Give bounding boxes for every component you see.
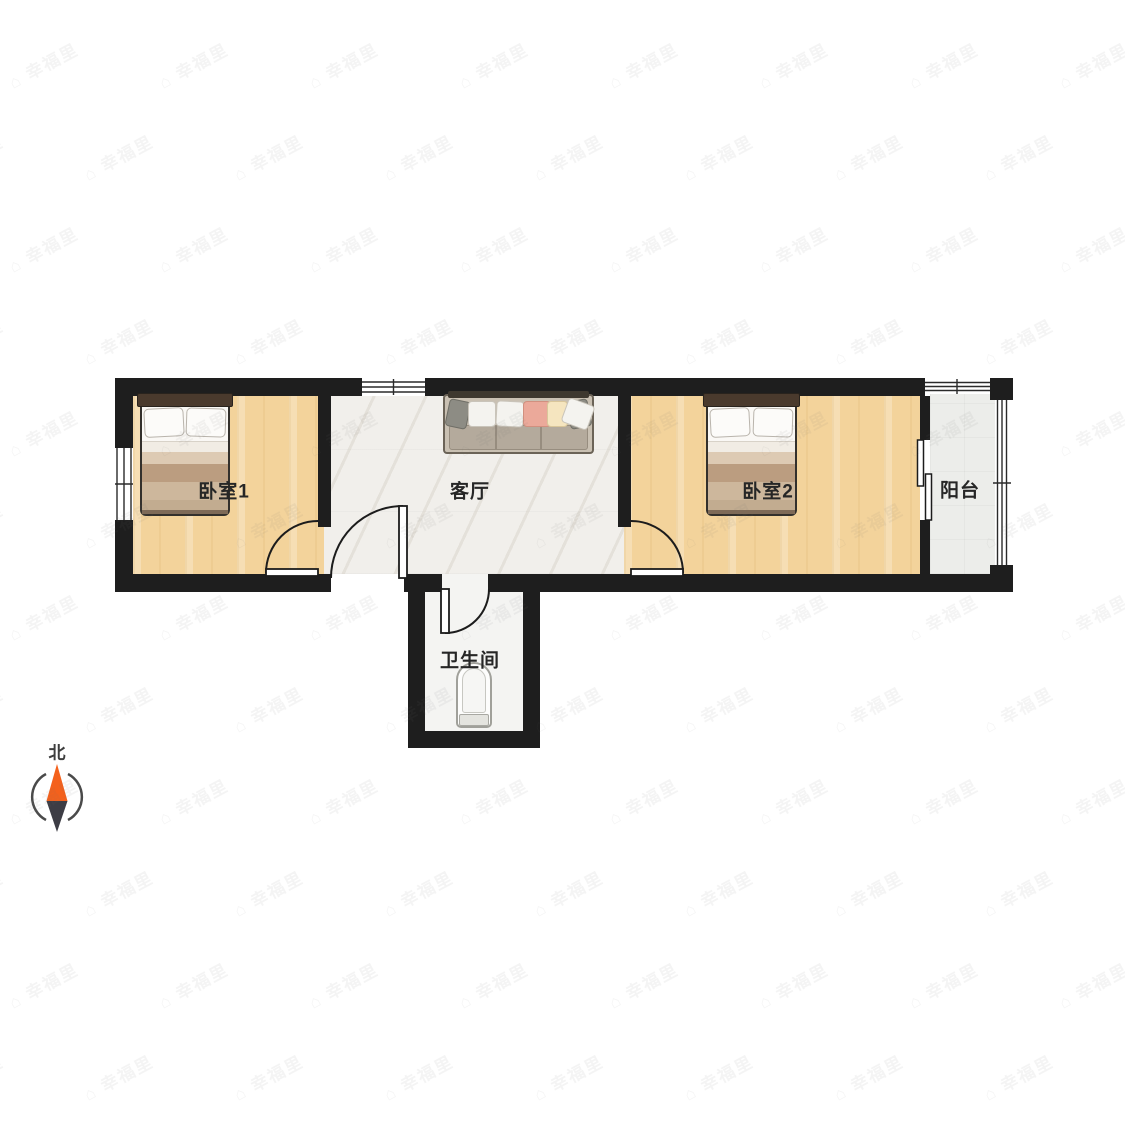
pillow-icon — [143, 407, 184, 438]
compass-north-needle — [47, 764, 68, 801]
watermark: ⌂ 幸福里 — [754, 772, 833, 830]
toilet-tank — [459, 714, 489, 726]
window-bedroom1-left — [115, 448, 133, 520]
wall-segment — [920, 520, 930, 574]
bed-headboard — [137, 393, 233, 407]
watermark: ⌂ 幸福里 — [304, 956, 383, 1014]
watermark: ⌂ 幸福里 — [829, 1048, 908, 1106]
watermark: ⌂ 幸福里 — [904, 588, 983, 646]
room-label-bedroom2: 卧室2 — [742, 477, 794, 504]
watermark: ⌂ 幸福里 — [1054, 220, 1125, 278]
bathroom-doorway-floor — [442, 574, 488, 592]
watermark: ⌂ 幸福里 — [0, 680, 7, 738]
toilet-seat — [462, 668, 486, 713]
watermark: ⌂ 幸福里 — [4, 404, 83, 462]
watermark: ⌂ 幸福里 — [904, 956, 983, 1014]
wall-segment — [488, 574, 1013, 592]
watermark: ⌂ 幸福里 — [1054, 404, 1125, 462]
watermark: ⌂ 幸福里 — [4, 36, 83, 94]
wall-segment — [115, 378, 133, 448]
compass-ring-left — [32, 774, 46, 820]
watermark: ⌂ 幸福里 — [229, 1048, 308, 1106]
watermark: ⌂ 幸福里 — [979, 864, 1058, 922]
watermark: ⌂ 幸福里 — [304, 36, 383, 94]
watermark: ⌂ 幸福里 — [529, 312, 608, 370]
window-living-top — [362, 379, 425, 395]
watermark: ⌂ 幸福里 — [454, 772, 533, 830]
watermark: ⌂ 幸福里 — [229, 312, 308, 370]
watermark: ⌂ 幸福里 — [0, 1048, 7, 1106]
watermark: ⌂ 幸福里 — [0, 496, 7, 554]
watermark: ⌂ 幸福里 — [79, 680, 158, 738]
watermark: ⌂ 幸福里 — [529, 0, 608, 1]
wall-segment — [408, 731, 540, 748]
window-balcony-right — [993, 400, 1011, 565]
compass-north-label: 北 — [49, 739, 66, 764]
watermark: ⌂ 幸福里 — [79, 128, 158, 186]
pillow-icon — [753, 407, 794, 437]
watermark: ⌂ 幸福里 — [829, 128, 908, 186]
wall-segment — [920, 396, 930, 440]
watermark: ⌂ 幸福里 — [304, 588, 383, 646]
watermark: ⌂ 幸福里 — [4, 956, 83, 1014]
watermark: ⌂ 幸福里 — [0, 0, 7, 1]
watermark: ⌂ 幸福里 — [379, 864, 458, 922]
watermark: ⌂ 幸福里 — [604, 772, 683, 830]
room-label-bedroom1: 卧室1 — [198, 477, 250, 504]
watermark: ⌂ 幸福里 — [829, 864, 908, 922]
wall-segment — [115, 574, 331, 592]
watermark: ⌂ 幸福里 — [79, 864, 158, 922]
watermark: ⌂ 幸福里 — [229, 0, 308, 1]
watermark: ⌂ 幸福里 — [754, 220, 833, 278]
watermark: ⌂ 幸福里 — [979, 312, 1058, 370]
watermark: ⌂ 幸福里 — [229, 864, 308, 922]
sofa-pillow — [468, 401, 496, 427]
watermark: ⌂ 幸福里 — [79, 1048, 158, 1106]
watermark: ⌂ 幸福里 — [379, 1048, 458, 1106]
wall-segment — [990, 378, 1013, 400]
watermark: ⌂ 幸福里 — [79, 312, 158, 370]
compass-ring-right — [68, 774, 82, 820]
wall-segment — [523, 592, 540, 748]
watermark: ⌂ 幸福里 — [154, 220, 233, 278]
watermark: ⌂ 幸福里 — [829, 312, 908, 370]
watermark: ⌂ 幸福里 — [0, 128, 7, 186]
floor-plan-canvas: ⌂ 幸福里⌂ 幸福里⌂ 幸福里⌂ 幸福里⌂ 幸福里⌂ 幸福里⌂ 幸福里⌂ 幸福里… — [0, 0, 1125, 1125]
watermark: ⌂ 幸福里 — [0, 312, 7, 370]
sofa-back — [448, 391, 589, 398]
room-label-living: 客厅 — [450, 477, 490, 504]
watermark: ⌂ 幸福里 — [754, 588, 833, 646]
watermark: ⌂ 幸福里 — [679, 0, 758, 1]
watermark: ⌂ 幸福里 — [4, 220, 83, 278]
room-label-balcony: 阳台 — [940, 476, 980, 503]
watermark: ⌂ 幸福里 — [529, 864, 608, 922]
watermark: ⌂ 幸福里 — [754, 36, 833, 94]
watermark: ⌂ 幸福里 — [379, 128, 458, 186]
watermark: ⌂ 幸福里 — [529, 1048, 608, 1106]
watermark: ⌂ 幸福里 — [529, 680, 608, 738]
bed-headboard — [703, 393, 800, 407]
watermark: ⌂ 幸福里 — [904, 36, 983, 94]
watermark: ⌂ 幸福里 — [454, 220, 533, 278]
watermark: ⌂ 幸福里 — [979, 1048, 1058, 1106]
watermark: ⌂ 幸福里 — [904, 220, 983, 278]
watermark: ⌂ 幸福里 — [679, 1048, 758, 1106]
watermark: ⌂ 幸福里 — [304, 772, 383, 830]
watermark: ⌂ 幸福里 — [154, 36, 233, 94]
wall-segment — [618, 396, 631, 527]
pillow-icon — [709, 407, 750, 438]
watermark: ⌂ 幸福里 — [529, 128, 608, 186]
compass-icon — [32, 764, 82, 832]
watermark: ⌂ 幸福里 — [0, 864, 7, 922]
watermark: ⌂ 幸福里 — [1054, 956, 1125, 1014]
watermark: ⌂ 幸福里 — [154, 588, 233, 646]
sofa-pillow — [495, 400, 524, 427]
watermark: ⌂ 幸福里 — [679, 128, 758, 186]
watermark: ⌂ 幸福里 — [679, 864, 758, 922]
watermark: ⌂ 幸福里 — [604, 956, 683, 1014]
watermark: ⌂ 幸福里 — [604, 36, 683, 94]
watermark: ⌂ 幸福里 — [154, 956, 233, 1014]
compass-south-needle — [47, 801, 68, 832]
watermark: ⌂ 幸福里 — [379, 0, 458, 1]
wall-segment — [990, 565, 1013, 592]
watermark: ⌂ 幸福里 — [979, 0, 1058, 1]
watermark: ⌂ 幸福里 — [679, 312, 758, 370]
watermark: ⌂ 幸福里 — [454, 956, 533, 1014]
watermark: ⌂ 幸福里 — [604, 588, 683, 646]
watermark: ⌂ 幸福里 — [304, 220, 383, 278]
watermark: ⌂ 幸福里 — [1054, 772, 1125, 830]
sofa-icon — [443, 394, 594, 454]
watermark: ⌂ 幸福里 — [4, 772, 83, 830]
watermark: ⌂ 幸福里 — [829, 680, 908, 738]
watermark: ⌂ 幸福里 — [979, 128, 1058, 186]
watermark: ⌂ 幸福里 — [229, 128, 308, 186]
watermark: ⌂ 幸福里 — [79, 0, 158, 1]
watermark: ⌂ 幸福里 — [229, 680, 308, 738]
watermark: ⌂ 幸福里 — [4, 588, 83, 646]
watermark: ⌂ 幸福里 — [679, 680, 758, 738]
watermark: ⌂ 幸福里 — [454, 36, 533, 94]
watermark: ⌂ 幸福里 — [379, 312, 458, 370]
room-label-bathroom: 卫生间 — [440, 646, 500, 673]
watermark: ⌂ 幸福里 — [829, 0, 908, 1]
watermark: ⌂ 幸福里 — [754, 956, 833, 1014]
watermark: ⌂ 幸福里 — [979, 680, 1058, 738]
watermark: ⌂ 幸福里 — [904, 772, 983, 830]
watermark: ⌂ 幸福里 — [1054, 588, 1125, 646]
watermark: ⌂ 幸福里 — [604, 220, 683, 278]
watermark: ⌂ 幸福里 — [154, 772, 233, 830]
sofa-seat — [449, 425, 588, 450]
wall-segment — [408, 592, 425, 748]
pillow-icon — [186, 407, 227, 437]
watermark: ⌂ 幸福里 — [1054, 36, 1125, 94]
wall-segment — [318, 396, 331, 527]
wall-segment — [404, 574, 442, 592]
